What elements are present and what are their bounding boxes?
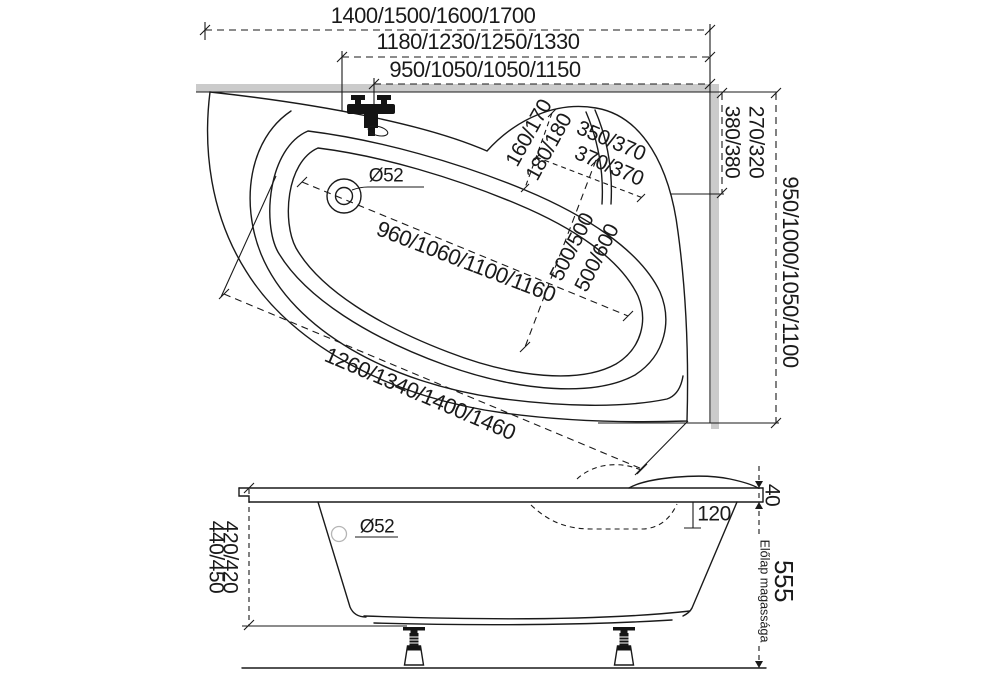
arrow-floor — [755, 661, 763, 668]
dim-wall-side-length: 950/1000/1050/1100 — [779, 176, 801, 367]
side-drain-circle — [332, 527, 347, 542]
drawing-canvas — [0, 0, 990, 675]
ext-line-diagonal-right — [635, 421, 688, 475]
dim-panel-height: 555 — [771, 560, 797, 602]
side-headrest-bump — [629, 476, 758, 488]
side-bottom-upper — [364, 611, 690, 619]
side-headrest-hidden-line — [577, 465, 641, 479]
dim-faucet-position: 950/1050/1050/1150 — [389, 59, 580, 81]
dim-overall-length: 1400/1500/1600/1700 — [331, 5, 536, 27]
adjustable-foot-right — [613, 627, 635, 665]
side-bottom-lower — [374, 620, 672, 625]
panel-height-label: Előlap magassága — [758, 538, 771, 645]
drain-diameter: Ø52 — [369, 167, 403, 186]
wall-right — [711, 84, 719, 429]
dim-corner-offset-a: 270/320 — [746, 106, 767, 178]
dim-seat-depth: 120 — [697, 504, 731, 525]
drain-diameter-side: Ø52 — [360, 518, 394, 537]
adjustable-foot-left — [403, 627, 425, 665]
wall-top — [196, 84, 719, 92]
technical-drawing: 1400/1500/1600/1700 1180/1230/1250/1330 … — [0, 0, 990, 675]
dim-rim-thickness: 40 — [762, 484, 783, 506]
dim-inner-length: 1180/1230/1250/1330 — [377, 31, 580, 53]
side-seat-hidden-line — [531, 504, 677, 529]
dim-depth-b: 440/450 — [206, 521, 227, 593]
dim-corner-offset-b: 380/380 — [722, 106, 743, 178]
